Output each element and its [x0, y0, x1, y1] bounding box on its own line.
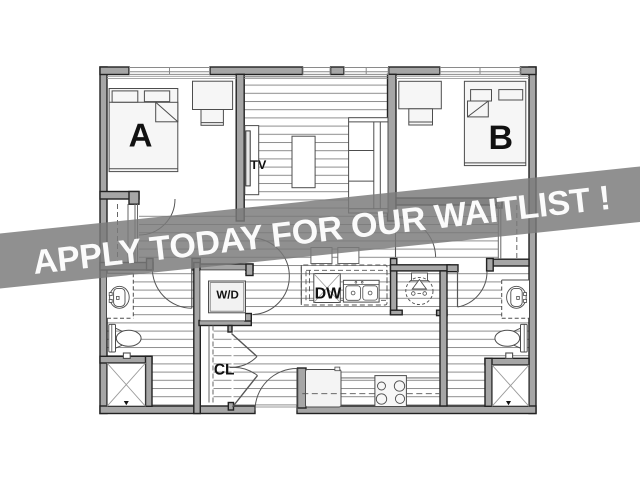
svg-text:CL: CL	[214, 361, 235, 378]
svg-text:TV: TV	[250, 158, 267, 172]
svg-text:B: B	[489, 119, 514, 157]
svg-text:W/D: W/D	[216, 289, 238, 301]
svg-text:DW: DW	[315, 286, 343, 303]
svg-text:A: A	[129, 116, 153, 153]
